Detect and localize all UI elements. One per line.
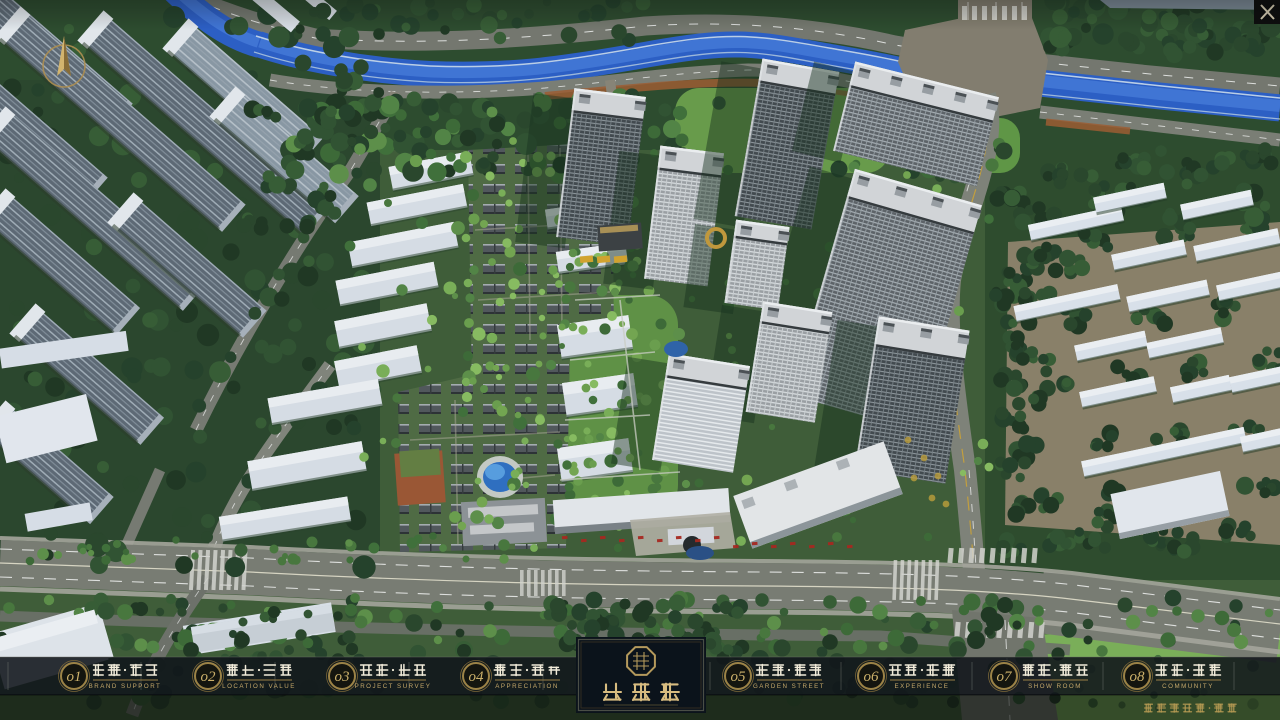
svg-text:LOCATION VALUE: LOCATION VALUE xyxy=(222,683,296,690)
svg-text:o4: o4 xyxy=(469,669,485,685)
svg-text:GARDEN STREET: GARDEN STREET xyxy=(753,683,825,690)
svg-text:APPRECIATION: APPRECIATION xyxy=(495,683,559,690)
svg-text:SHOW ROOM: SHOW ROOM xyxy=(1028,683,1082,690)
svg-text:EXPERIENCE: EXPERIENCE xyxy=(895,683,950,690)
svg-text:COMMUNITY: COMMUNITY xyxy=(1162,683,1214,690)
svg-text:BRAND SUPPORT: BRAND SUPPORT xyxy=(89,683,162,690)
svg-text:o3: o3 xyxy=(335,669,350,685)
svg-text:PROJECT SURVEY: PROJECT SURVEY xyxy=(355,683,432,690)
svg-text:o8: o8 xyxy=(1130,669,1146,685)
svg-text:o2: o2 xyxy=(201,669,217,685)
svg-text:o7: o7 xyxy=(997,669,1014,685)
svg-text:o6: o6 xyxy=(864,669,880,685)
svg-text:o1: o1 xyxy=(67,669,82,685)
svg-text:o5: o5 xyxy=(731,669,747,685)
